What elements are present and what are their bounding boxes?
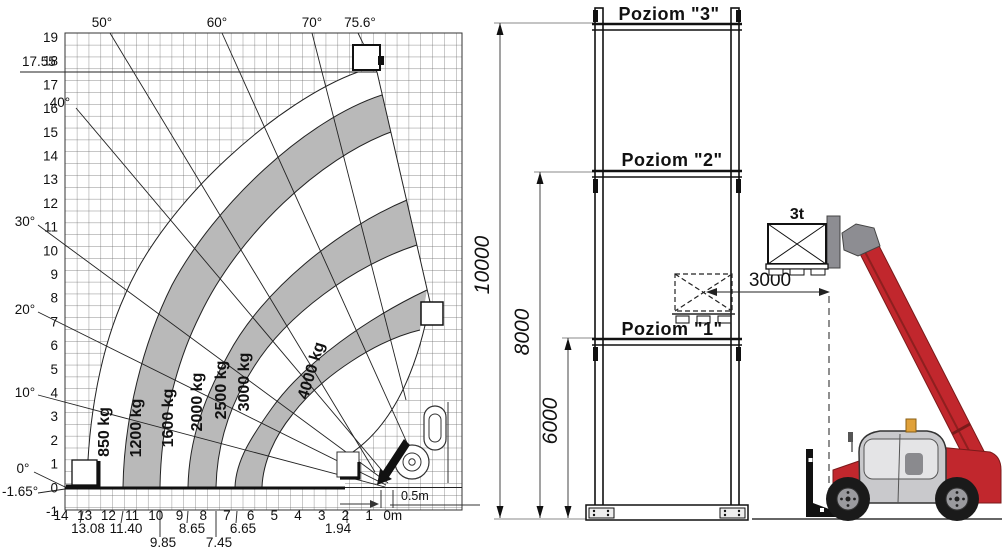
- axis-tick-label: 2: [342, 508, 350, 523]
- axis-tick-label: 13: [43, 172, 58, 187]
- carried-load: 3t: [766, 206, 828, 275]
- svg-text:0°: 0°: [17, 461, 30, 476]
- load-chart: 17.55: [2, 15, 480, 550]
- front-wheel: [826, 477, 870, 521]
- svg-text:50°: 50°: [92, 15, 112, 30]
- svg-text:11.40: 11.40: [110, 521, 143, 536]
- axis-tick-label: 17: [43, 77, 58, 92]
- axis-tick-label: 1: [365, 508, 373, 523]
- axis-tick-label: 11: [125, 508, 139, 523]
- svg-text:10°: 10°: [15, 385, 35, 400]
- reach-labels: 13.08 11.40 9.85 8.65 7.45 6.65 1.94: [71, 521, 352, 550]
- dim-labels: 10000 8000 6000: [471, 235, 562, 444]
- level-1-label: Poziom "1": [621, 319, 722, 339]
- svg-text:8.65: 8.65: [179, 521, 205, 536]
- svg-text:6.65: 6.65: [230, 521, 256, 536]
- svg-text:20°: 20°: [15, 302, 35, 317]
- axis-tick-label: 9: [176, 508, 184, 523]
- axis-tick-label: 12: [101, 508, 116, 523]
- seat: [905, 453, 923, 475]
- axis-tick-label: 19: [43, 30, 58, 45]
- svg-text:-1.65°: -1.65°: [2, 484, 38, 499]
- axis-tick-label: 8: [50, 291, 58, 306]
- axis-tick-label: 3: [318, 508, 326, 523]
- svg-text:2000 kg: 2000 kg: [189, 373, 206, 432]
- ghost-pallet: [672, 274, 735, 323]
- svg-text:13.08: 13.08: [71, 521, 105, 536]
- axis-tick-label: 0m: [383, 508, 402, 523]
- offset-label: 0.5m: [401, 489, 429, 503]
- load-box-top: [353, 45, 384, 70]
- axis-tick-label: 0: [50, 480, 58, 495]
- svg-text:75.6°: 75.6°: [344, 15, 376, 30]
- axis-tick-label: 10: [148, 508, 163, 523]
- axis-tick-label: 6: [247, 508, 255, 523]
- axis-tick-label: 3: [50, 409, 58, 424]
- svg-text:1600 kg: 1600 kg: [160, 389, 177, 448]
- axis-tick-label: 10: [43, 243, 58, 258]
- axis-tick-label: 1: [50, 457, 58, 472]
- rack-diagram: 10000 8000 6000: [471, 4, 1002, 521]
- screenshot-root: 17.55: [0, 0, 1002, 552]
- axis-tick-label: 9: [50, 267, 58, 282]
- svg-text:7.45: 7.45: [206, 535, 232, 550]
- level-3-label: Poziom "3": [618, 4, 719, 24]
- level-2-label: Poziom "2": [621, 150, 722, 170]
- svg-text:3000 kg: 3000 kg: [236, 353, 253, 412]
- axis-tick-label: 14: [43, 149, 59, 164]
- axis-tick-label: 11: [44, 220, 58, 235]
- axis-tick-label: 12: [43, 196, 58, 211]
- axis-tick-label: 4: [294, 508, 302, 523]
- mirror: [848, 432, 853, 442]
- rack-structure: [586, 8, 748, 520]
- axis-tick-label: 4: [50, 386, 58, 401]
- axis-tick-label: 5: [271, 508, 279, 523]
- axis-tick-label: 8: [199, 508, 207, 523]
- rack-base: [586, 505, 748, 520]
- axis-tick-label: 18: [43, 54, 58, 69]
- axis-tick-label: 5: [50, 362, 58, 377]
- svg-text:6000: 6000: [539, 397, 562, 444]
- load-box-mid: [421, 302, 443, 325]
- load-weight-label: 3t: [790, 206, 805, 223]
- svg-text:9.85: 9.85: [150, 535, 176, 550]
- svg-text:70°: 70°: [302, 15, 322, 30]
- beacon: [906, 419, 916, 432]
- axis-tick-label: 6: [50, 338, 58, 353]
- svg-text:850 kg: 850 kg: [96, 407, 113, 457]
- axis-tick-label: 2: [50, 433, 58, 448]
- axis-tick-label: 7: [223, 508, 231, 523]
- axis-tick-label: 14: [53, 508, 69, 523]
- axis-tick-label: 13: [77, 508, 92, 523]
- svg-text:1200 kg: 1200 kg: [128, 399, 145, 458]
- cab-window: [864, 439, 938, 479]
- telehandler: [806, 216, 1001, 521]
- axis-tick-label: 7: [50, 314, 58, 329]
- fork-carriage-sketch: [337, 452, 359, 478]
- rear-wheel: [935, 477, 979, 521]
- svg-text:60°: 60°: [207, 15, 227, 30]
- svg-text:10000: 10000: [471, 235, 494, 294]
- svg-text:30°: 30°: [15, 214, 35, 229]
- axis-tick-label: 15: [43, 125, 58, 140]
- svg-text:1.94: 1.94: [325, 521, 352, 536]
- svg-text:8000: 8000: [511, 308, 534, 355]
- axis-tick-label: 16: [43, 101, 58, 116]
- svg-text:2500 kg: 2500 kg: [213, 361, 230, 420]
- carriage-plate: [827, 216, 840, 268]
- telehandler-load-diagram: 17.55: [0, 0, 1002, 552]
- y-axis-ticks: 191817161514131211109876543210-1: [43, 30, 59, 519]
- rack-joint-tabs: [593, 10, 741, 361]
